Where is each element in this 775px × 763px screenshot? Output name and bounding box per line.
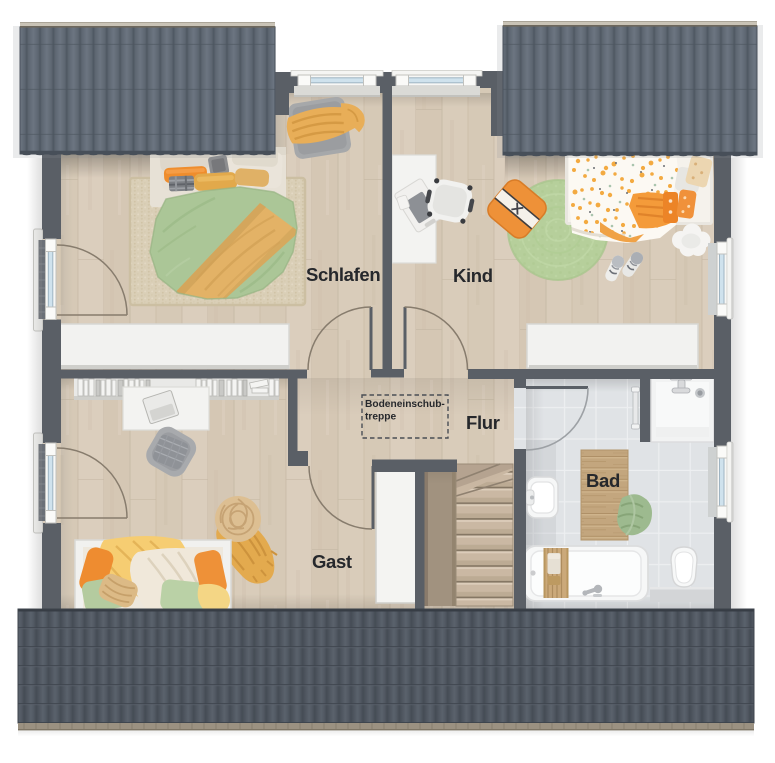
svg-text:Flur: Flur — [466, 412, 500, 433]
svg-text:Gast: Gast — [312, 551, 352, 572]
svg-text:Bad: Bad — [586, 470, 620, 491]
svg-text:Bodeneinschub-: Bodeneinschub- — [365, 399, 445, 410]
svg-text:treppe: treppe — [365, 412, 396, 423]
svg-text:Schlafen: Schlafen — [306, 264, 380, 285]
svg-text:Kind: Kind — [453, 265, 493, 286]
